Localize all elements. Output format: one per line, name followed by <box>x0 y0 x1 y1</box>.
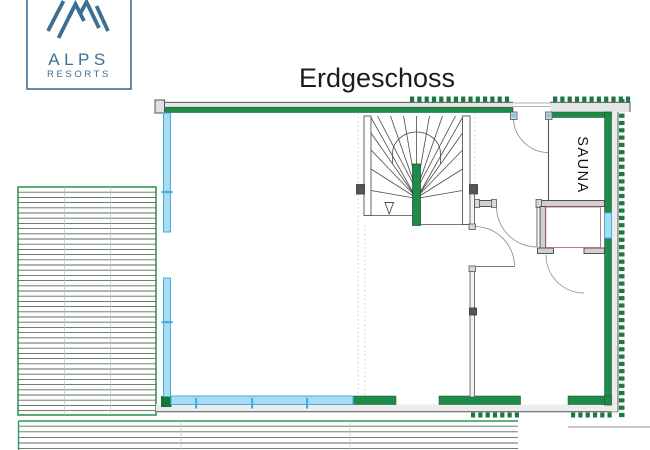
svg-text:RESORTS: RESORTS <box>47 69 111 80</box>
svg-text:Erdgeschoss: Erdgeschoss <box>299 63 455 93</box>
svg-text:ALPS: ALPS <box>48 50 109 69</box>
svg-text:SAUNA: SAUNA <box>574 136 590 193</box>
